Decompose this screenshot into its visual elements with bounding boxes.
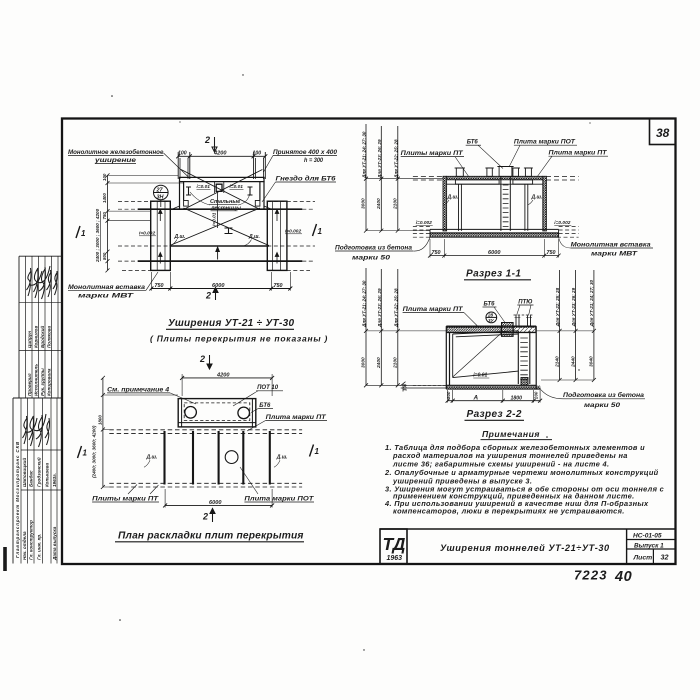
svg-text:Плита марки ПТ: Плита марки ПТ — [403, 307, 465, 313]
svg-text:i=0.01: i=0.01 — [212, 212, 218, 226]
svg-text:Исполнитель: Исполнитель — [34, 364, 39, 396]
svg-text:2: 2 — [199, 354, 205, 364]
svg-text:Для УТ-23; 26; 29: Для УТ-23; 26; 29 — [571, 287, 576, 327]
svg-text:Д.ш.: Д.ш. — [276, 455, 288, 461]
svg-text:Д.ш.: Д.ш. — [248, 234, 260, 240]
svg-text:ПТЮ: ПТЮ — [518, 299, 532, 305]
svg-text:3000: 3000 — [361, 357, 367, 368]
svg-text:2400: 2400 — [376, 198, 382, 210]
svg-text:Гл. инж. пр.: Гл. инж. пр. — [37, 534, 42, 560]
svg-text:марки 50: марки 50 — [352, 256, 391, 262]
svg-text:марки МВТ: марки МВТ — [78, 294, 135, 300]
svg-text:2440: 2440 — [570, 356, 576, 368]
svg-text:3У: 3У — [488, 318, 495, 323]
svg-text:Монолитное железобетонное: Монолитное железобетонное — [68, 149, 164, 156]
svg-text:Уширения тоннелей УТ-21÷УТ-3: Уширения тоннелей УТ-21÷УТ-30 — [440, 543, 610, 553]
svg-text:3040: 3040 — [589, 356, 595, 367]
svg-text:100: 100 — [253, 151, 262, 157]
svg-text:Д.ш.: Д.ш. — [531, 195, 543, 201]
svg-text:БТ6: БТ6 — [467, 140, 479, 146]
svg-text:уширение: уширение — [94, 158, 137, 164]
svg-text:1800: 1800 — [98, 415, 103, 425]
svg-text:Копышева: Копышева — [45, 462, 50, 487]
svg-text:32: 32 — [661, 553, 669, 562]
svg-text:1: 1 — [315, 447, 320, 456]
svg-text:См. примечание 4: См. примечание 4 — [107, 387, 170, 393]
svg-text:Разрез 1-1: Разрез 1-1 — [466, 269, 521, 280]
svg-text:40: 40 — [614, 569, 632, 585]
svg-text:2: 2 — [204, 135, 210, 145]
svg-text:2100: 2100 — [393, 198, 399, 210]
svg-text:марки 50: марки 50 — [584, 403, 621, 409]
svg-text:Корнилов: Корнилов — [34, 326, 39, 348]
svg-text:(2400; 3000; 3600; 4200): (2400; 3000; 3600; 4200) — [92, 425, 97, 478]
svg-text:Д.ш.: Д.ш. — [447, 195, 459, 201]
svg-text:h = 300: h = 300 — [304, 158, 324, 164]
svg-text:компенсаторов, люки в перекр: компенсаторов, люки в перекрытиях не уст… — [393, 507, 625, 516]
svg-text:1800: 1800 — [511, 396, 523, 402]
svg-text:БТ6: БТ6 — [484, 301, 496, 307]
svg-text:ПОТ 10: ПОТ 10 — [257, 385, 279, 391]
svg-text:100: 100 — [178, 151, 187, 157]
svg-text:Лист: Лист — [633, 555, 653, 562]
svg-text:Разрез 2-2: Разрез 2-2 — [467, 409, 522, 420]
svg-text:Принятое 400 х 400: Принятое 400 х 400 — [273, 150, 338, 156]
svg-text:1: 1 — [81, 229, 86, 238]
svg-text:Гродзинский: Гродзинский — [36, 457, 42, 487]
svg-text:2100: 2100 — [393, 357, 399, 369]
svg-text:200: 200 — [533, 391, 538, 400]
svg-text:750: 750 — [432, 250, 441, 256]
svg-text:Монолитная вставка: Монолитная вставка — [571, 242, 652, 248]
svg-text:Плита марки ПОТ: Плита марки ПОТ — [514, 140, 576, 146]
svg-text:Бродский: Бродский — [39, 326, 45, 348]
svg-text:750: 750 — [274, 283, 283, 289]
svg-text:Плиты марки ПТ: Плиты марки ПТ — [92, 496, 160, 502]
svg-text:4200: 4200 — [216, 372, 230, 378]
svg-text:Плита марки ПОТ: Плита марки ПОТ — [244, 496, 315, 502]
svg-text:Уширения УТ-21 ÷ УТ-30: Уширения УТ-21 ÷ УТ-30 — [168, 318, 294, 329]
svg-text:6000: 6000 — [488, 250, 501, 256]
svg-text:800: 800 — [102, 252, 107, 260]
svg-text:( Плиты перекрытия не показ: ( Плиты перекрытия не показаны ) — [150, 334, 328, 344]
svg-text:28: 28 — [487, 313, 494, 318]
svg-text:750: 750 — [155, 283, 164, 289]
svg-text:2: 2 — [202, 512, 208, 522]
svg-text:Для УТ-22; 25; 28: Для УТ-22; 25; 28 — [555, 287, 560, 327]
svg-text:1: 1 — [83, 449, 88, 458]
svg-text:Копировала: Копировала — [47, 368, 52, 396]
svg-text:800: 800 — [446, 391, 451, 399]
svg-text:7223: 7223 — [574, 568, 608, 583]
svg-text:Рук. группы: Рук. группы — [40, 368, 45, 396]
svg-text:38: 38 — [656, 126, 670, 140]
svg-text:100: 100 — [102, 173, 107, 181]
svg-text:НС-01-05: НС-01-05 — [633, 533, 662, 540]
svg-text:3Н: 3Н — [157, 195, 165, 201]
svg-text:Примечания: Примечания — [482, 429, 540, 439]
svg-text:Выпуск 1: Выпуск 1 — [634, 542, 664, 549]
svg-text:Шаповицкий: Шаповицкий — [21, 458, 27, 487]
svg-text:2400 ; 3000 ; 3600 ; 4200: 2400 ; 3000 ; 3600 ; 4200 — [95, 208, 100, 263]
svg-text:27: 27 — [156, 188, 164, 194]
svg-text:i=0.01: i=0.01 — [473, 373, 487, 379]
svg-text:БТ6: БТ6 — [259, 403, 271, 409]
svg-text:Проверил: Проверил — [27, 373, 32, 396]
svg-text:750: 750 — [547, 250, 556, 256]
svg-text:Подготовка из бетона: Подготовка из бетона — [563, 392, 645, 399]
svg-text:Гл. конструктор: Гл. конструктор — [29, 520, 34, 560]
svg-text:Ципрун: Ципрун — [27, 331, 32, 348]
svg-text:2: 2 — [205, 291, 211, 301]
svg-text:1963: 1963 — [387, 555, 403, 562]
svg-text:6000: 6000 — [212, 283, 225, 289]
svg-text:1963г.: 1963г. — [52, 473, 57, 487]
svg-text:Плита марки ПТ: Плита марки ПТ — [266, 415, 328, 421]
svg-text:3000: 3000 — [361, 198, 367, 209]
svg-text:Плита марки ПТ: Плита марки ПТ — [549, 151, 609, 157]
svg-text:ТД: ТД — [383, 534, 406, 554]
svg-text:Нач. отдела: Нач. отдела — [22, 531, 27, 560]
svg-text:Для УТ-21; 24; 27; 30: Для УТ-21; 24; 27; 30 — [589, 279, 594, 327]
svg-text:План раскладки плит перекры: План раскладки плит перекрытия — [118, 531, 304, 542]
svg-text:2400: 2400 — [376, 357, 382, 369]
svg-text:300: 300 — [403, 383, 408, 391]
svg-text:Главтранспроект Мосгипротранс: Главтранспроект Мосгипротранс СКВ — [15, 441, 20, 558]
svg-text:Плиты марки ПТ: Плиты марки ПТ — [401, 151, 465, 157]
svg-text:1: 1 — [318, 227, 323, 236]
svg-text:Дата выпуска: Дата выпуска — [52, 526, 57, 561]
svg-text:1400: 1400 — [102, 193, 107, 203]
svg-text:Д.ш.: Д.ш. — [146, 455, 158, 461]
svg-text:Полякова: Полякова — [47, 325, 52, 348]
svg-text:4200: 4200 — [213, 151, 227, 157]
svg-text:Д.ш.: Д.ш. — [174, 234, 186, 240]
svg-text:марки МВТ: марки МВТ — [591, 252, 639, 258]
svg-text:Гнездо для БТ6: Гнездо для БТ6 — [276, 177, 337, 183]
svg-text:6000: 6000 — [209, 500, 222, 506]
svg-text:Бандас: Бандас — [29, 470, 34, 487]
svg-text:Подготовка из бетона: Подготовка из бетона — [335, 245, 413, 252]
svg-text:2140: 2140 — [554, 356, 560, 368]
svg-text:А: А — [473, 395, 479, 402]
svg-text:750: 750 — [102, 212, 107, 220]
